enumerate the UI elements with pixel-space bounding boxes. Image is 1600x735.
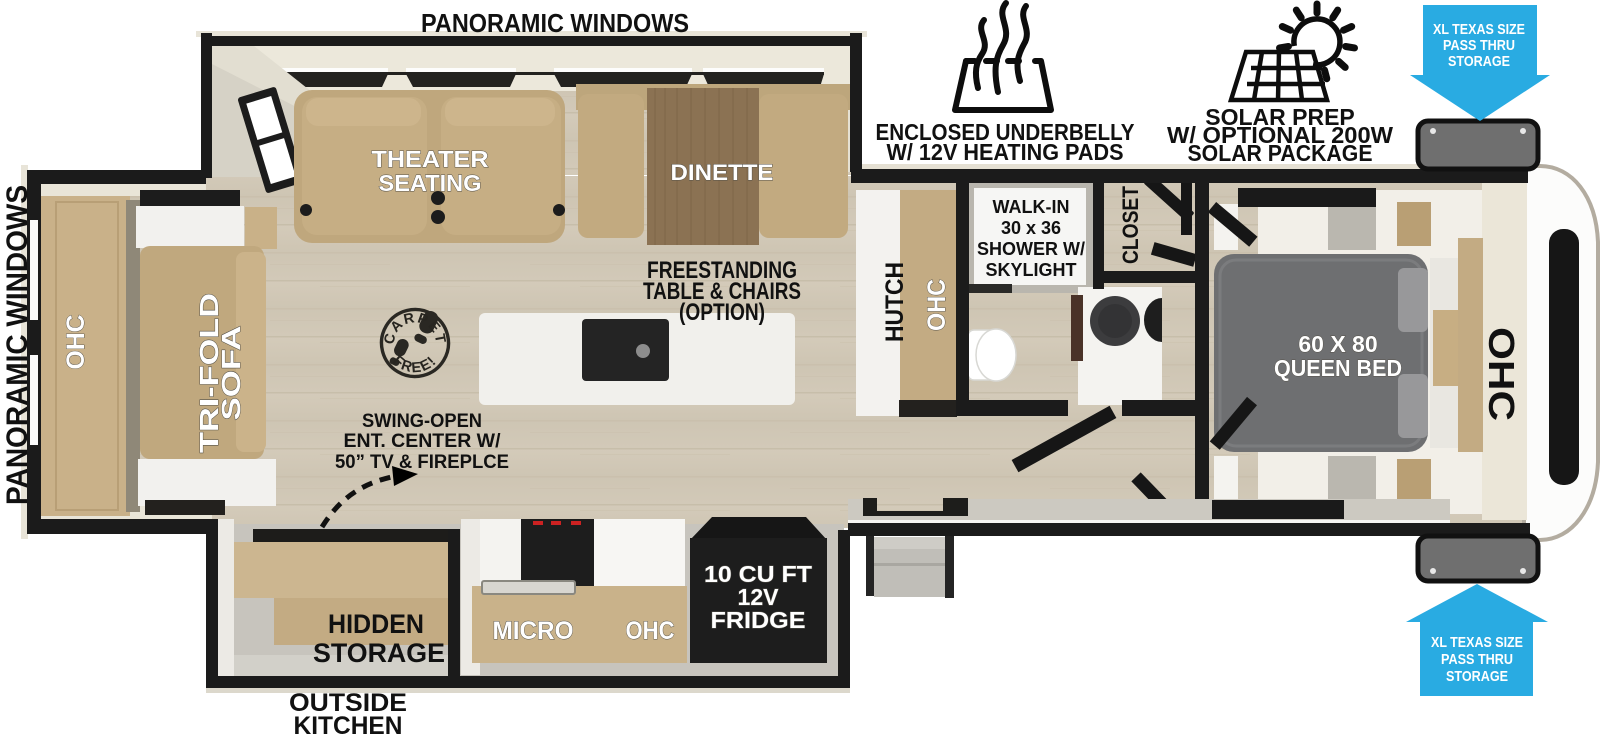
svg-text:OHC: OHC [1481, 327, 1522, 421]
svg-text:SEATING: SEATING [379, 170, 482, 196]
svg-text:OHC: OHC [62, 315, 90, 370]
svg-text:50” TV & FIREPLCE: 50” TV & FIREPLCE [335, 452, 509, 473]
svg-text:30 x 36: 30 x 36 [1001, 218, 1061, 238]
svg-text:HIDDEN: HIDDEN [328, 609, 424, 639]
svg-text:PASS THRU: PASS THRU [1441, 651, 1513, 668]
svg-text:SKYLIGHT: SKYLIGHT [985, 260, 1076, 280]
svg-text:STORAGE: STORAGE [1448, 53, 1510, 70]
svg-text:OHC: OHC [626, 617, 675, 645]
svg-text:STORAGE: STORAGE [313, 638, 445, 668]
svg-text:SOLAR PACKAGE: SOLAR PACKAGE [1188, 140, 1373, 166]
svg-text:SWING-OPEN: SWING-OPEN [362, 411, 482, 432]
svg-text:QUEEN BED: QUEEN BED [1274, 355, 1402, 381]
svg-text:60 X 80: 60 X 80 [1298, 331, 1377, 357]
svg-text:PANORAMIC WINDOWS: PANORAMIC WINDOWS [1, 185, 34, 505]
svg-text:FRIDGE: FRIDGE [711, 607, 806, 633]
svg-text:KITCHEN: KITCHEN [294, 712, 403, 735]
svg-text:CLOSET: CLOSET [1118, 186, 1143, 264]
svg-text:SHOWER W/: SHOWER W/ [977, 239, 1085, 259]
svg-text:MICRO: MICRO [493, 617, 574, 645]
svg-text:STORAGE: STORAGE [1446, 668, 1508, 685]
svg-text:XL TEXAS SIZE: XL TEXAS SIZE [1433, 21, 1525, 38]
svg-text:W/ 12V HEATING PADS: W/ 12V HEATING PADS [887, 139, 1124, 165]
svg-text:SOFA: SOFA [216, 325, 246, 420]
svg-text:PANORAMIC WINDOWS: PANORAMIC WINDOWS [421, 8, 689, 38]
svg-text:DINETTE: DINETTE [671, 160, 774, 185]
svg-text:PASS THRU: PASS THRU [1443, 37, 1515, 54]
svg-text:WALK-IN: WALK-IN [993, 197, 1070, 217]
svg-text:OHC: OHC [923, 279, 951, 331]
svg-text:ENT. CENTER W/: ENT. CENTER W/ [344, 431, 502, 452]
svg-text:XL TEXAS SIZE: XL TEXAS SIZE [1431, 634, 1523, 651]
svg-text:THEATER: THEATER [372, 146, 489, 172]
svg-text:HUTCH: HUTCH [881, 262, 909, 342]
svg-text:(OPTION): (OPTION) [679, 299, 765, 326]
